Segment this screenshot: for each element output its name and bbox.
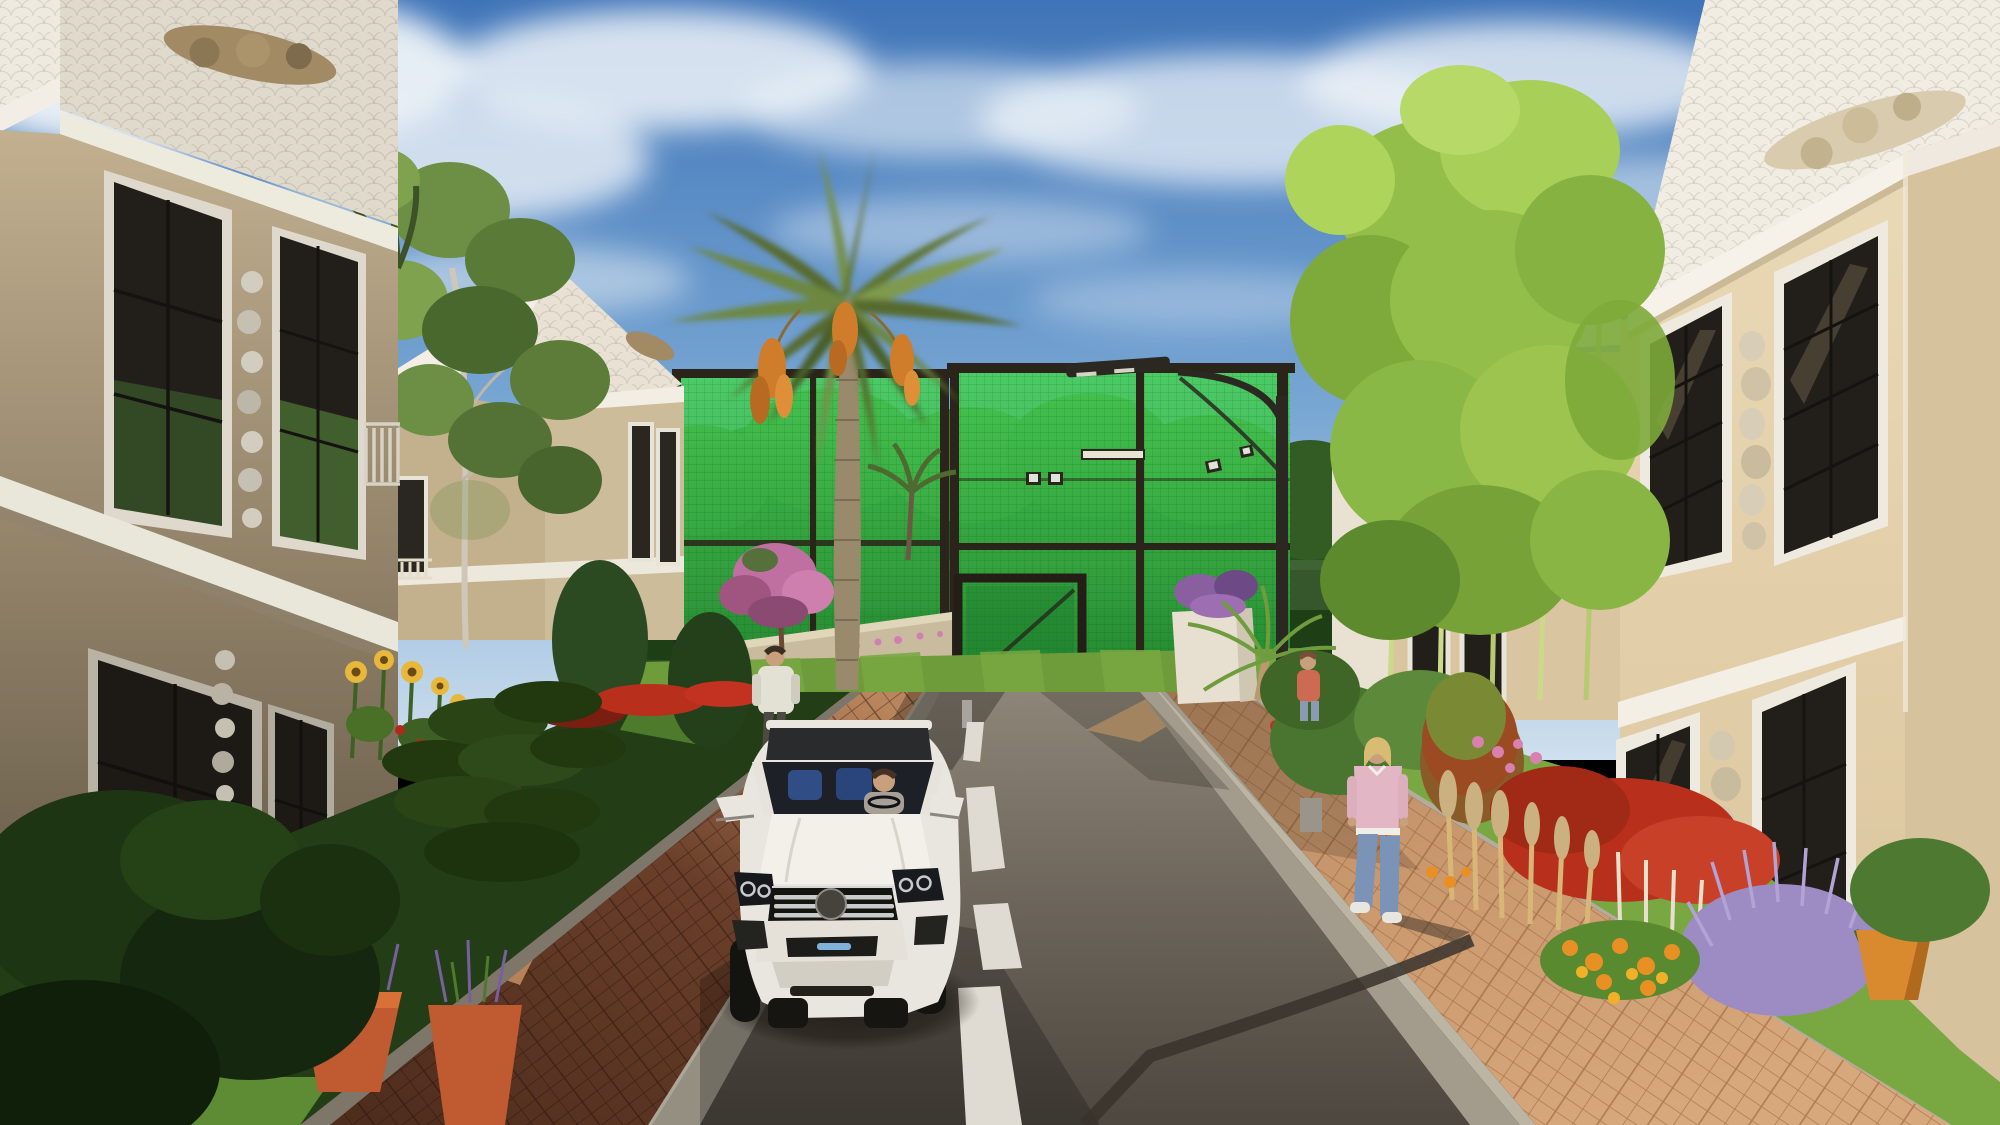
flower-dot bbox=[395, 725, 405, 735]
bumper-blue-accent bbox=[817, 943, 851, 950]
left-villa-window-upper-2 bbox=[272, 226, 366, 560]
window bbox=[630, 424, 652, 560]
pine-pad bbox=[424, 822, 580, 882]
bamboo-foliage bbox=[1285, 65, 1675, 640]
ornament-scroll bbox=[241, 271, 263, 293]
man-arm bbox=[791, 674, 800, 704]
date-cluster bbox=[775, 374, 793, 418]
sunflower-center bbox=[408, 668, 417, 677]
ornament-scroll bbox=[215, 718, 235, 738]
person-leg bbox=[1311, 701, 1319, 721]
car-seat bbox=[788, 770, 822, 800]
scene-render bbox=[0, 0, 2000, 1125]
bamboo-grove bbox=[1285, 65, 1675, 700]
woman-sneaker bbox=[1382, 912, 1402, 923]
court-post bbox=[1136, 367, 1144, 693]
ornament-scroll bbox=[1711, 767, 1741, 801]
court-rail-thin bbox=[952, 478, 1290, 481]
ornament-scroll bbox=[212, 751, 234, 773]
flower-dot bbox=[1472, 736, 1484, 748]
conifer bbox=[668, 612, 752, 748]
flower-dot bbox=[1505, 763, 1515, 773]
ornament-scroll bbox=[215, 650, 235, 670]
woman-sneaker bbox=[1350, 902, 1370, 913]
left-villa-window-upper-1 bbox=[104, 170, 232, 538]
sunflower-center bbox=[380, 656, 388, 664]
flower-dot bbox=[1626, 968, 1638, 980]
flower-dot bbox=[875, 639, 882, 646]
plume bbox=[1584, 830, 1600, 870]
bamboo-clump bbox=[1530, 470, 1670, 610]
ornament-scroll bbox=[237, 390, 261, 414]
woman-leg bbox=[1380, 836, 1400, 916]
window bbox=[658, 430, 678, 564]
woman-hand bbox=[1400, 818, 1409, 827]
ornament-scroll bbox=[1741, 445, 1771, 479]
ornament-scroll bbox=[1741, 367, 1771, 401]
right-villa-window-upper-2 bbox=[1774, 220, 1888, 566]
bamboo-clump bbox=[1285, 125, 1395, 235]
sunflower-leaves bbox=[346, 706, 394, 742]
plume bbox=[1524, 802, 1540, 846]
person-leg bbox=[1300, 701, 1308, 721]
flower-leaves bbox=[1540, 920, 1700, 1000]
ornament-scroll bbox=[1739, 484, 1765, 516]
flower-dot bbox=[1461, 867, 1471, 877]
bumper-underside bbox=[790, 986, 874, 996]
ornament-scroll bbox=[211, 683, 233, 705]
pine-pad bbox=[494, 681, 602, 723]
flower-dot bbox=[917, 633, 924, 640]
plume bbox=[1465, 782, 1483, 830]
ornament-scroll bbox=[237, 310, 261, 334]
flower-dot bbox=[1530, 752, 1542, 764]
corner-highlight bbox=[1903, 152, 1908, 712]
woman-sweater bbox=[1354, 766, 1402, 834]
flower-dot bbox=[1492, 746, 1504, 758]
flower-dot bbox=[1637, 957, 1655, 975]
flower-dot bbox=[1664, 944, 1680, 960]
stone-block bbox=[1300, 798, 1322, 832]
person-torso bbox=[1297, 670, 1320, 702]
flower-dot bbox=[1608, 992, 1620, 1004]
flower-dot bbox=[1576, 966, 1588, 978]
render-viewport bbox=[0, 0, 2000, 1125]
pink-tree-canopy bbox=[748, 596, 808, 628]
sunflower-center bbox=[437, 683, 444, 690]
woman-hand bbox=[1348, 818, 1357, 827]
floodlight-face bbox=[1029, 474, 1038, 482]
red-green-bush bbox=[1426, 672, 1506, 760]
wheel-bottom-left bbox=[768, 998, 808, 1028]
pine-pad bbox=[530, 728, 626, 768]
floodlight-bar bbox=[1082, 450, 1144, 459]
flower-dot bbox=[1612, 938, 1628, 954]
date-cluster bbox=[904, 370, 920, 406]
flower-dot bbox=[1513, 739, 1523, 749]
ornament-scroll bbox=[1709, 731, 1735, 761]
flower-dot bbox=[1444, 876, 1456, 888]
white-suv bbox=[716, 720, 980, 1050]
bumper-intake-left bbox=[732, 920, 768, 950]
green-bush bbox=[1850, 838, 1990, 942]
plume bbox=[1491, 790, 1509, 838]
ornament-scroll bbox=[1739, 331, 1765, 361]
wheel-bottom-right bbox=[864, 998, 908, 1028]
man-torso bbox=[758, 666, 794, 714]
flower-dot bbox=[937, 631, 943, 637]
car-headlight-left bbox=[734, 872, 776, 906]
flower-dot bbox=[1640, 980, 1656, 996]
bumper-intake-right bbox=[914, 915, 948, 945]
court-mid-rail bbox=[952, 543, 1290, 550]
birch-leaves bbox=[518, 446, 602, 514]
woman-arm bbox=[1347, 776, 1357, 820]
ornament-scroll bbox=[1739, 408, 1765, 440]
sunflower-center bbox=[352, 668, 361, 677]
car-roof-glass bbox=[766, 728, 932, 760]
date-cluster bbox=[829, 340, 847, 376]
car-grille bbox=[768, 886, 898, 921]
man-arm bbox=[752, 674, 761, 706]
plume bbox=[1554, 816, 1570, 860]
ornament-scroll bbox=[241, 431, 263, 453]
woman-sweater-hem bbox=[1356, 828, 1400, 835]
grille-badge bbox=[816, 889, 846, 919]
bumper-lower-lip bbox=[772, 960, 894, 988]
woman-arm bbox=[1398, 774, 1408, 820]
ornament-scroll bbox=[241, 351, 263, 373]
dark-bush bbox=[260, 844, 400, 956]
bamboo-clump bbox=[1400, 65, 1520, 155]
lavender-mound bbox=[1680, 884, 1880, 1016]
bamboo-clump bbox=[1515, 175, 1665, 325]
flower-dot bbox=[894, 636, 902, 644]
ornament-scroll bbox=[1742, 522, 1766, 550]
flower-dot bbox=[1656, 972, 1668, 984]
birch-leaves bbox=[430, 480, 510, 540]
flower-dot bbox=[1426, 866, 1438, 878]
floodlight-face bbox=[1051, 474, 1060, 482]
flower-dot bbox=[1585, 953, 1603, 971]
flower-dot bbox=[1562, 940, 1578, 956]
bamboo-clump bbox=[1565, 300, 1675, 460]
flower-dot bbox=[1596, 974, 1612, 990]
ornament-scroll bbox=[238, 468, 262, 492]
car-headlight-right bbox=[892, 868, 944, 903]
ornament-scroll bbox=[242, 508, 262, 528]
plume bbox=[1439, 770, 1457, 818]
pink-tree-leaves bbox=[742, 548, 778, 572]
bamboo-clump bbox=[1320, 520, 1460, 640]
date-cluster bbox=[750, 376, 770, 424]
